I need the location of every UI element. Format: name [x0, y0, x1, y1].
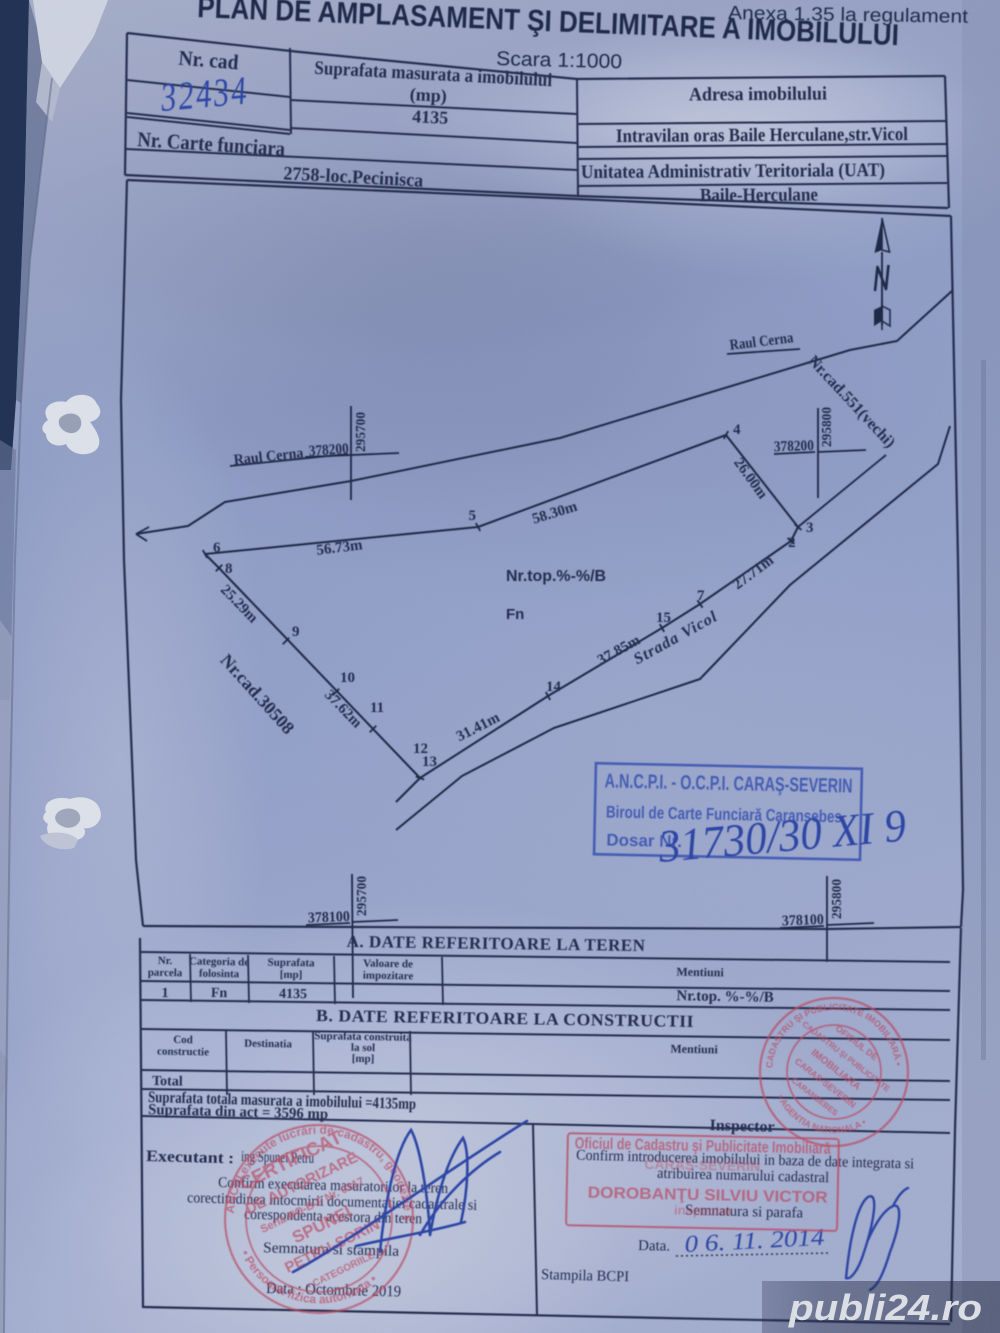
svg-text:publi24.ro: publi24.ro	[788, 1287, 982, 1328]
